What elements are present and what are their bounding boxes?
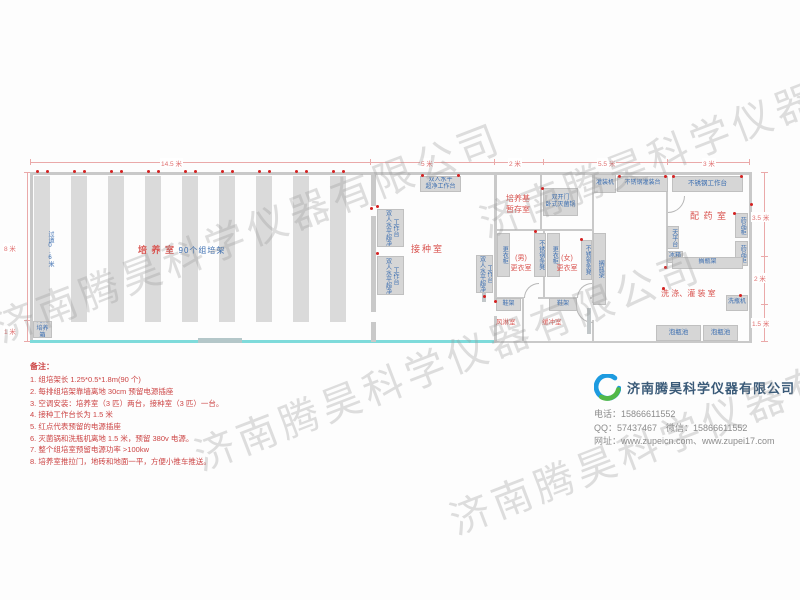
work-table: 不锈钢工作台 xyxy=(672,176,743,192)
dim-tick xyxy=(749,159,750,165)
power-outlet-dot xyxy=(494,300,497,303)
dimension-line-right xyxy=(764,172,765,342)
power-outlet-dot xyxy=(231,170,234,173)
wall-inoculation xyxy=(371,216,376,312)
inoculation-room-label: 接种室 xyxy=(411,242,444,255)
laminar-flow-bench: 双人水平超净工作台 xyxy=(377,256,404,295)
floor-plan-page: 济南腾昊科学仪器有限公司 济南腾昊科学仪器有限公司 济南腾昊科学仪器有限公司 济… xyxy=(0,0,800,600)
culture-room-name: 培 养 室 xyxy=(138,245,175,255)
air-shower-label: 风淋室 xyxy=(496,316,516,326)
power-outlet-dot xyxy=(194,170,197,173)
power-outlet-dot xyxy=(36,170,39,173)
note-item: 4. 接种工作台长为 1.5 米 xyxy=(30,409,223,421)
power-outlet-dot xyxy=(750,203,753,206)
power-outlet-dot xyxy=(258,170,261,173)
bottle-washer: 洗瓶机 xyxy=(726,295,748,311)
wall-shower-mid xyxy=(522,299,524,342)
washing-room-label: 洗 涤、灌 装 室 xyxy=(661,288,716,299)
power-outlet-dot xyxy=(541,187,544,190)
bottle-rack: 搁瓶架 xyxy=(593,233,606,305)
aisle-label: 过道0.6米 xyxy=(46,231,55,281)
note-item: 5. 红点代表预留的电源插座 xyxy=(30,421,223,433)
note-item: 2. 每排组培架靠墙离地 30cm 预留电源插座 xyxy=(30,386,223,398)
dim-label-right-1: 3.5 米 xyxy=(751,212,770,222)
wall-inoculation xyxy=(371,322,376,342)
steel-bench: 不锈钢条凳 xyxy=(534,233,546,277)
door-leaf xyxy=(587,308,591,334)
power-outlet-dot xyxy=(733,212,736,215)
note-item: 6. 灭菌锅和洗瓶机离地 1.5 米，预留 380v 电源。 xyxy=(30,433,223,445)
power-outlet-dot xyxy=(147,170,150,173)
dim-label-top-4: 5.5 米 xyxy=(597,158,616,168)
dim-tick xyxy=(667,159,668,165)
dim-label-right-2: 2 米 xyxy=(753,273,767,283)
dim-tick xyxy=(30,159,31,165)
balance-table: 天平台 xyxy=(667,226,679,249)
power-outlet-dot xyxy=(73,170,76,173)
company-logo-icon xyxy=(594,374,621,401)
shoe-rack: 鞋架 xyxy=(549,298,577,311)
power-outlet-dot xyxy=(370,207,373,210)
dim-tick xyxy=(494,159,495,165)
note-item: 8. 培养室推拉门，地砖和地面一平，方便小推车推送。 xyxy=(30,456,223,468)
culture-rack-row xyxy=(108,176,124,322)
note-item: 3. 空调安装：培养室（3 匹）两台，接种室（3 匹）一台。 xyxy=(30,398,223,410)
laminar-flow-bench: 双人水平超净工作台 xyxy=(377,209,404,247)
womens-changing-label: (女) 更衣室 xyxy=(553,254,581,274)
power-outlet-dot xyxy=(739,294,742,297)
dim-tick xyxy=(761,172,768,173)
notes-list: 1. 组培架长 1.25*0.5*1.8m(90 个)2. 每排组培架靠墙离地 … xyxy=(30,374,223,467)
wall-right-section xyxy=(592,320,594,342)
power-outlet-dot xyxy=(376,252,379,255)
dimension-line-top xyxy=(30,162,750,163)
power-outlet-dot xyxy=(664,266,667,269)
power-outlet-dot xyxy=(580,238,583,241)
autoclave: 双开门 卧式灭菌锅 xyxy=(543,188,578,216)
door-arc xyxy=(668,196,685,213)
sliding-door xyxy=(198,338,242,343)
power-outlet-dot xyxy=(534,230,537,233)
steel-bench: 不锈钢条凳 xyxy=(581,240,592,280)
company-block: 济南腾昊科学仪器有限公司 电话：15866611552 QQ：57437467 … xyxy=(594,374,795,449)
company-phone: 电话：15866611552 xyxy=(594,408,795,422)
power-outlet-dot xyxy=(342,170,345,173)
wall-bottom-glass xyxy=(30,340,494,343)
power-outlet-dot xyxy=(295,170,298,173)
power-outlet-dot xyxy=(376,205,379,208)
lighted-incubator: 光照 培养箱 xyxy=(33,321,52,338)
power-outlet-dot xyxy=(46,170,49,173)
company-name: 济南腾昊科学仪器有限公司 xyxy=(627,378,795,397)
wall-storage xyxy=(540,172,542,231)
soaking-pool: 泡瓶池 xyxy=(703,325,738,341)
filling-table: 不锈钢灌装台 xyxy=(617,176,668,192)
dim-label-top-3: 2 米 xyxy=(508,158,522,168)
soaking-pool: 泡瓶池 xyxy=(656,325,701,341)
dim-label-top-1: 14.5 米 xyxy=(160,158,183,168)
note-item: 7. 整个组培室预留电源功率 >100kw xyxy=(30,444,223,456)
culture-rack-row xyxy=(293,176,309,322)
power-outlet-dot xyxy=(110,170,113,173)
dim-tick xyxy=(761,304,768,305)
dim-tick xyxy=(543,159,544,165)
power-outlet-dot xyxy=(332,170,335,173)
company-website: 网址：www.zupeicn.com、www.zupei17.com xyxy=(594,435,795,449)
culture-rack-row xyxy=(71,176,87,322)
dispensing-room-label: 配 药 室 xyxy=(690,209,727,222)
culture-rack-row xyxy=(256,176,272,322)
power-outlet-dot xyxy=(664,175,667,178)
company-qq-wechat: QQ：57437467 微信：15866611552 xyxy=(594,422,795,436)
rack-count-label: 90个组培架 xyxy=(179,246,226,255)
power-outlet-dot xyxy=(457,174,460,177)
wall-left xyxy=(30,172,33,342)
mens-changing-label: (男) 更衣室 xyxy=(507,254,535,274)
wall-top xyxy=(30,172,752,175)
power-outlet-dot xyxy=(157,170,160,173)
power-outlet-dot xyxy=(662,287,665,290)
power-outlet-dot xyxy=(672,175,675,178)
power-outlet-dot xyxy=(618,175,621,178)
culture-rack-row xyxy=(330,176,346,322)
power-outlet-dot xyxy=(184,170,187,173)
buffer-room-label: 缓冲室 xyxy=(542,316,562,326)
medium-storage-label: 培养基 暂存室 xyxy=(499,193,537,215)
power-outlet-dot xyxy=(83,170,86,173)
dim-tick xyxy=(370,159,371,165)
dimension-line-left xyxy=(27,172,28,342)
notes-title: 备注： xyxy=(30,361,223,373)
notes-block: 备注： 1. 组培架长 1.25*0.5*1.8m(90 个)2. 每排组培架靠… xyxy=(30,361,223,467)
wall-bottom xyxy=(494,341,752,343)
laminar-flow-bench: 双人水平 超净工作台 xyxy=(420,176,461,192)
culture-room-label: 培 养 室 90个组培架 xyxy=(138,243,225,256)
dim-label-top-2: 5 米 xyxy=(420,158,434,168)
dim-label-left-1: 8 米 xyxy=(3,243,17,253)
power-outlet-dot xyxy=(421,174,424,177)
door-arc xyxy=(577,283,592,298)
dim-tick xyxy=(761,341,768,342)
power-outlet-dot xyxy=(120,170,123,173)
filling-machine: 灌装机 xyxy=(594,174,616,193)
power-outlet-dot xyxy=(740,175,743,178)
dim-label-left-2: 1 米 xyxy=(3,326,17,336)
wall-inoculation xyxy=(371,172,376,206)
door-arc xyxy=(524,283,539,298)
dim-tick xyxy=(761,256,768,257)
power-outlet-dot xyxy=(221,170,224,173)
power-outlet-dot xyxy=(268,170,271,173)
note-item: 1. 组培架长 1.25*0.5*1.8m(90 个) xyxy=(30,374,223,386)
medicine-cabinet: 药品柜 xyxy=(735,213,748,238)
bottle-rack: 搁瓶架 xyxy=(672,257,743,269)
wall-right xyxy=(749,172,752,342)
laminar-flow-bench: 双人水平超净工作台 xyxy=(476,255,493,293)
power-outlet-dot xyxy=(305,170,308,173)
shoe-rack: 鞋架 xyxy=(496,298,521,311)
power-outlet-dot xyxy=(483,295,486,298)
dim-label-right-3: 1.5 米 xyxy=(751,318,770,328)
dim-label-top-5: 3 米 xyxy=(702,158,716,168)
